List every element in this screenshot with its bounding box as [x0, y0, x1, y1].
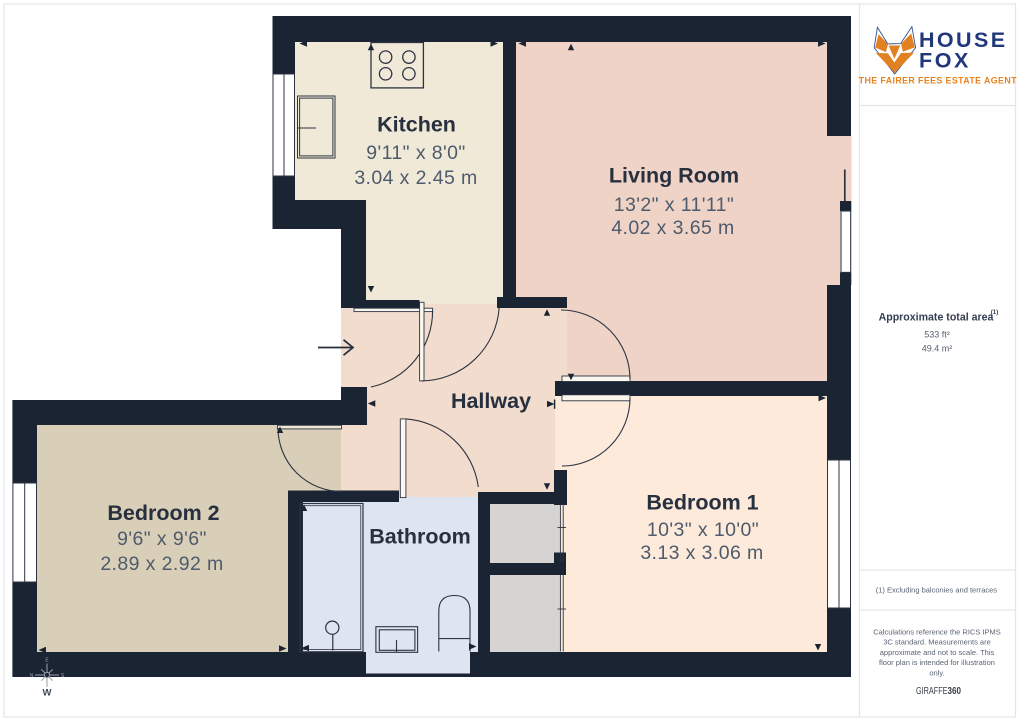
svg-text:Bedroom 2: Bedroom 2 [107, 501, 219, 525]
svg-text:3C standard. Measurements are: 3C standard. Measurements are [883, 638, 991, 647]
svg-text:9'6" x 9'6": 9'6" x 9'6" [117, 528, 207, 550]
svg-text:only.: only. [929, 669, 944, 678]
svg-text:floor plan is intended for ill: floor plan is intended for illustration [879, 658, 995, 667]
svg-text:2.89 x 2.92 m: 2.89 x 2.92 m [100, 553, 223, 575]
svg-text:13'2" x 11'11": 13'2" x 11'11" [614, 194, 735, 216]
svg-text:360: 360 [948, 685, 962, 697]
svg-text:Hallway: Hallway [451, 389, 531, 413]
svg-text:Bathroom: Bathroom [369, 525, 471, 549]
svg-text:10'3" x 10'0": 10'3" x 10'0" [647, 519, 759, 541]
svg-text:9'11" x 8'0": 9'11" x 8'0" [366, 142, 465, 164]
svg-text:3.13 x 3.06 m: 3.13 x 3.06 m [640, 542, 763, 564]
svg-text:533 ft²: 533 ft² [924, 330, 950, 340]
svg-text:THE FAIRER FEES ESTATE AGENT: THE FAIRER FEES ESTATE AGENT [859, 76, 1017, 86]
svg-text:Kitchen: Kitchen [377, 113, 456, 137]
svg-text:W: W [43, 688, 52, 699]
svg-text:Living Room: Living Room [609, 164, 739, 188]
svg-text:Bedroom 1: Bedroom 1 [646, 491, 758, 515]
svg-text:3.04 x 2.45 m: 3.04 x 2.45 m [354, 167, 477, 189]
svg-text:Calculations reference the RIC: Calculations reference the RICS IPMS [873, 627, 1001, 636]
svg-text:49.4 m²: 49.4 m² [922, 344, 953, 354]
svg-text:approximate and not to scale.: approximate and not to scale. This [880, 648, 995, 657]
svg-text:GIRAFFE: GIRAFFE [916, 685, 948, 697]
svg-text:(1) Excluding balconies and te: (1) Excluding balconies and terraces [876, 586, 998, 595]
svg-text:4.02 x 3.65 m: 4.02 x 3.65 m [611, 217, 734, 239]
svg-text:(1): (1) [991, 309, 999, 316]
svg-text:N: N [30, 673, 34, 679]
svg-text:FOX: FOX [919, 49, 971, 73]
svg-text:Approximate total area: Approximate total area [879, 312, 994, 324]
